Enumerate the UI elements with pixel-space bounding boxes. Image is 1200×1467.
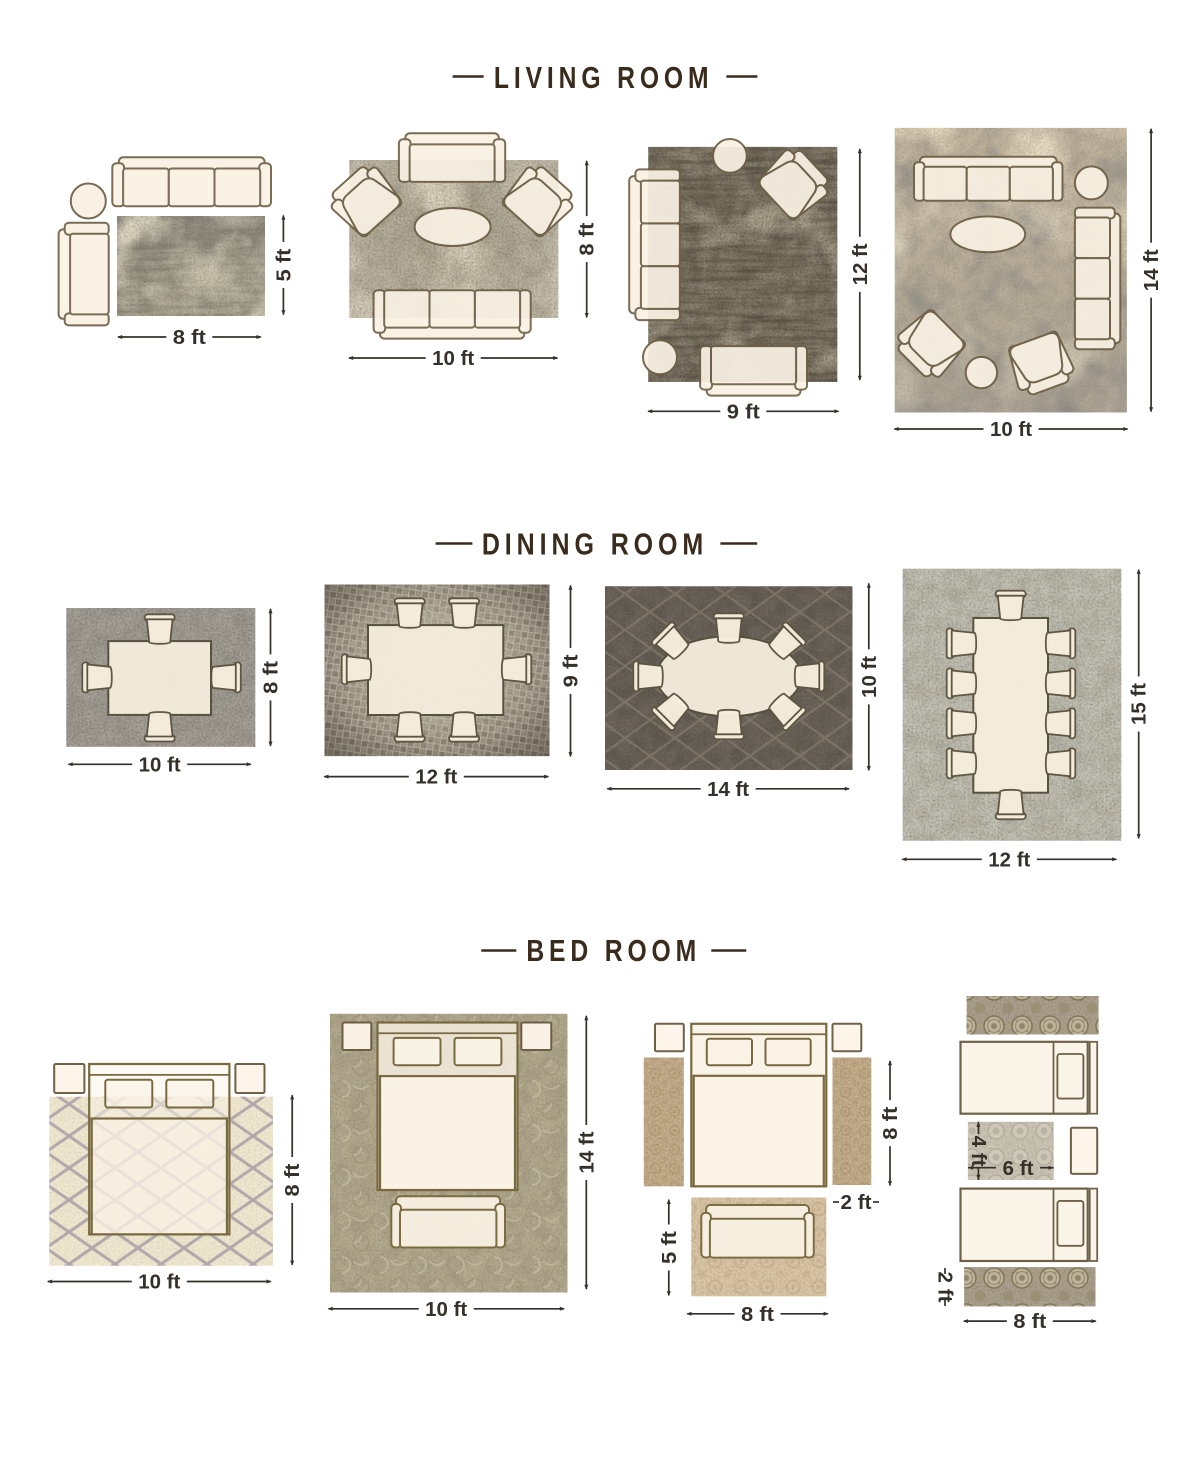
svg-text:8 ft: 8 ft <box>173 327 206 349</box>
svg-text:12 ft: 12 ft <box>850 243 872 285</box>
svg-text:14 ft: 14 ft <box>576 1131 598 1173</box>
svg-text:4 ft: 4 ft <box>967 1136 989 1167</box>
svg-text:12 ft: 12 ft <box>988 849 1030 871</box>
svg-text:8 ft: 8 ft <box>1013 1311 1046 1333</box>
svg-text:9 ft: 9 ft <box>727 401 760 423</box>
svg-text:2 ft: 2 ft <box>841 1192 872 1214</box>
svg-text:10 ft: 10 ft <box>425 1299 467 1321</box>
svg-text:6 ft: 6 ft <box>1003 1158 1034 1180</box>
svg-text:8 ft: 8 ft <box>577 222 599 255</box>
svg-text:5 ft: 5 ft <box>659 1231 681 1264</box>
svg-text:10 ft: 10 ft <box>138 1272 180 1294</box>
svg-text:DINING ROOM: DINING ROOM <box>482 527 708 561</box>
svg-text:8 ft: 8 ft <box>741 1304 774 1326</box>
svg-text:2 ft: 2 ft <box>934 1272 956 1303</box>
svg-text:10 ft: 10 ft <box>432 348 474 370</box>
svg-text:8 ft: 8 ft <box>282 1163 304 1196</box>
svg-text:15 ft: 15 ft <box>1129 683 1151 725</box>
svg-text:10 ft: 10 ft <box>139 754 181 776</box>
svg-text:5 ft: 5 ft <box>273 248 295 281</box>
svg-text:BED ROOM: BED ROOM <box>526 934 701 968</box>
svg-text:8 ft: 8 ft <box>261 661 283 694</box>
svg-text:8 ft: 8 ft <box>880 1106 902 1139</box>
svg-text:LIVING ROOM: LIVING ROOM <box>494 61 714 95</box>
svg-text:14 ft: 14 ft <box>707 779 749 801</box>
svg-text:10 ft: 10 ft <box>990 419 1032 441</box>
svg-text:14 ft: 14 ft <box>1141 249 1163 291</box>
svg-text:10 ft: 10 ft <box>859 656 881 698</box>
svg-text:9 ft: 9 ft <box>561 654 583 687</box>
svg-text:12 ft: 12 ft <box>415 767 457 789</box>
